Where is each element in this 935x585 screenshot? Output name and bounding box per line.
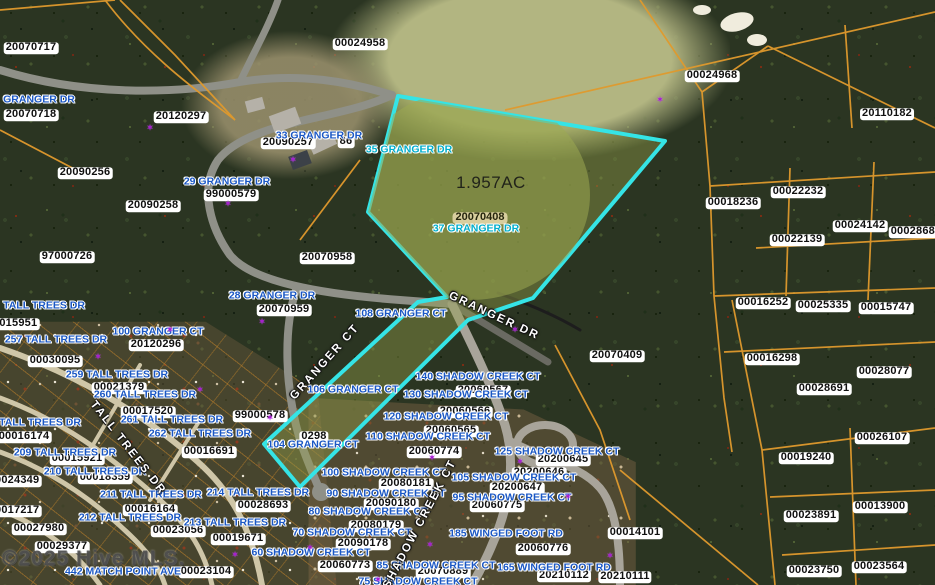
parcel-id-label: 20060776 <box>516 543 571 555</box>
parcel-id-label: 00017217 <box>0 505 41 517</box>
street-address-label: 262 TALL TREES DR <box>149 428 251 439</box>
street-address-label: 209 TALL TREES DR <box>14 447 116 458</box>
parcel-id-label: 00019240 <box>779 452 834 464</box>
parcel-id-label: 99000578 <box>233 410 288 422</box>
subject-acreage-label: 1.957AC <box>456 174 526 192</box>
street-address-label: 29 GRANGER DR <box>184 176 270 187</box>
parcel-id-label: 20070959 <box>257 304 312 316</box>
parcel-id-label: 00027980 <box>12 523 67 535</box>
parcel-id-label: 20120297 <box>154 111 209 123</box>
street-address-label: 130 SHADOW CREEK CT <box>404 389 529 400</box>
parcel-id-label: 20070409 <box>590 350 645 362</box>
street-address-label: TALL TREES DR <box>0 417 81 428</box>
parcel-id-label: 20110182 <box>860 108 914 120</box>
parcel-id-label: 20070718 <box>4 109 59 121</box>
parcel-id-label: 00023564 <box>852 561 907 573</box>
street-address-label: 95 SHADOW CREEK CT <box>452 492 571 503</box>
street-address-label: 125 SHADOW CREEK CT <box>495 446 620 457</box>
subject-address-label: 37 GRANGER DR <box>433 223 519 234</box>
street-address-label: 80 SHADOW CREEK CT <box>308 506 427 517</box>
parcel-id-label: 00023750 <box>787 565 842 577</box>
gps-marker-icon: ✶ <box>511 325 519 336</box>
gps-marker-icon: ✶ <box>306 543 314 554</box>
parcel-id-label: 00024968 <box>685 70 740 82</box>
parcel-id-label: 00013900 <box>853 501 908 513</box>
parcel-id-label: 00022232 <box>771 186 826 198</box>
street-address-label: 100 GRANGER CT <box>112 326 203 337</box>
parcel-id-label: 00016252 <box>736 297 791 309</box>
parcel-id-label: 00014101 <box>608 527 663 539</box>
parcel-id-label: 00028077 <box>857 366 912 378</box>
street-address-label: 165 WINGED FOOT RD <box>497 562 611 573</box>
parcel-id-label: 00016174 <box>0 431 51 443</box>
gps-marker-icon: ✶ <box>94 352 102 363</box>
parcel-id-label: 00025335 <box>796 300 851 312</box>
parcel-id-label: 00016691 <box>182 446 237 458</box>
parcel-id-label: 00024349 <box>0 475 41 487</box>
street-address-label: 70 SHADOW CREEK CT <box>292 527 411 538</box>
street-address-label: TALL TREES DR <box>3 300 85 311</box>
gps-marker-icon: ✶ <box>196 385 204 396</box>
gps-marker-icon: ✶ <box>426 540 434 551</box>
gps-marker-icon: ✶ <box>166 325 174 336</box>
parcel-id-label: 20090258 <box>126 200 181 212</box>
street-address-label: 104 GRANGER CT <box>267 439 358 450</box>
parcel-id-label: 00018236 <box>706 197 761 209</box>
street-address-label: 106 GRANGER CT <box>307 384 398 395</box>
street-address-label: 110 SHADOW CREEK CT <box>366 431 490 442</box>
gps-marker-icon: ✶ <box>564 492 572 503</box>
parcel-id-label: 97000726 <box>40 251 95 263</box>
parcel-id-label: 00026107 <box>855 432 910 444</box>
parcel-id-label: 20060773 <box>318 560 373 572</box>
street-address-label: 211 TALL TREES DR <box>100 489 202 500</box>
street-address-label: 185 WINGED FOOT RD <box>449 528 563 539</box>
street-address-label: 260 TALL TREES DR <box>94 389 196 400</box>
gps-marker-icon: ✶ <box>606 551 614 562</box>
parcel-id-label: 20120296 <box>129 339 184 351</box>
gps-marker-icon: ✶ <box>374 575 382 585</box>
parcel-map[interactable]: 2007071700024958000249682011018220070718… <box>0 0 935 585</box>
parcel-id-label: 00015747 <box>859 302 914 314</box>
street-address-label: 140 SHADOW CREEK CT <box>416 371 541 382</box>
street-address-label: 257 TALL TREES DR <box>5 334 107 345</box>
gps-marker-icon: ✶ <box>258 317 266 328</box>
parcel-id-label: 20090256 <box>58 167 113 179</box>
gps-marker-icon: ✶ <box>656 95 664 106</box>
parcel-id-label: 20070717 <box>4 42 59 54</box>
parcel-id-label: 20070958 <box>300 252 355 264</box>
gps-marker-icon: ✶ <box>266 413 274 424</box>
parcel-id-label: 00030095 <box>28 355 83 367</box>
street-address-label: 210 TALL TREES DR <box>44 466 146 477</box>
parcel-id-label: 00015951 <box>0 318 39 330</box>
parcel-id-label: 00023104 <box>179 566 234 578</box>
street-address-label: 120 SHADOW CREEK CT <box>384 411 509 422</box>
parcel-id-label: 00016298 <box>745 353 800 365</box>
parcel-id-label: 00028689 <box>889 226 935 238</box>
parcel-id-label: 00022139 <box>770 234 825 246</box>
gps-marker-icon: ✶ <box>428 453 436 464</box>
street-name-label: GRANGER DR <box>447 290 541 343</box>
mls-watermark: ©2025 Hive MLS. <box>2 547 185 571</box>
street-address-label: 100 SHADOW CREEK CT <box>322 467 447 478</box>
parcel-id-label: 00023891 <box>784 510 839 522</box>
street-address-label: 33 GRANGER DR <box>276 130 362 141</box>
gps-marker-icon: ✶ <box>289 155 297 166</box>
street-address-label: 35 GRANGER DR <box>366 144 452 155</box>
street-address-label: 213 TALL TREES DR <box>184 517 286 528</box>
parcel-id-label: 00024958 <box>333 38 388 50</box>
parcel-id-label: 00019671 <box>211 533 266 545</box>
parcel-id-label: 00028691 <box>797 383 852 395</box>
street-address-label: GRANGER DR <box>3 94 75 105</box>
street-address-label: 214 TALL TREES DR <box>207 487 309 498</box>
street-address-label: 105 SHADOW CREEK CT <box>452 472 577 483</box>
parcel-id-label: 00028693 <box>236 500 291 512</box>
street-address-label: 259 TALL TREES DR <box>66 369 168 380</box>
street-address-label: 108 GRANGER CT <box>355 308 446 319</box>
gps-marker-icon: ✶ <box>146 123 154 134</box>
parcel-id-label: 00024142 <box>833 220 888 232</box>
street-address-label: 261 TALL TREES DR <box>121 414 223 425</box>
map-labels: 2007071700024958000249682011018220070718… <box>0 0 935 585</box>
street-address-label: 212 TALL TREES DR <box>79 512 181 523</box>
gps-marker-icon: ✶ <box>224 199 232 210</box>
gps-marker-icon: ✶ <box>231 550 239 561</box>
street-address-label: 28 GRANGER DR <box>229 290 315 301</box>
gps-marker-icon: ✶ <box>516 457 524 468</box>
